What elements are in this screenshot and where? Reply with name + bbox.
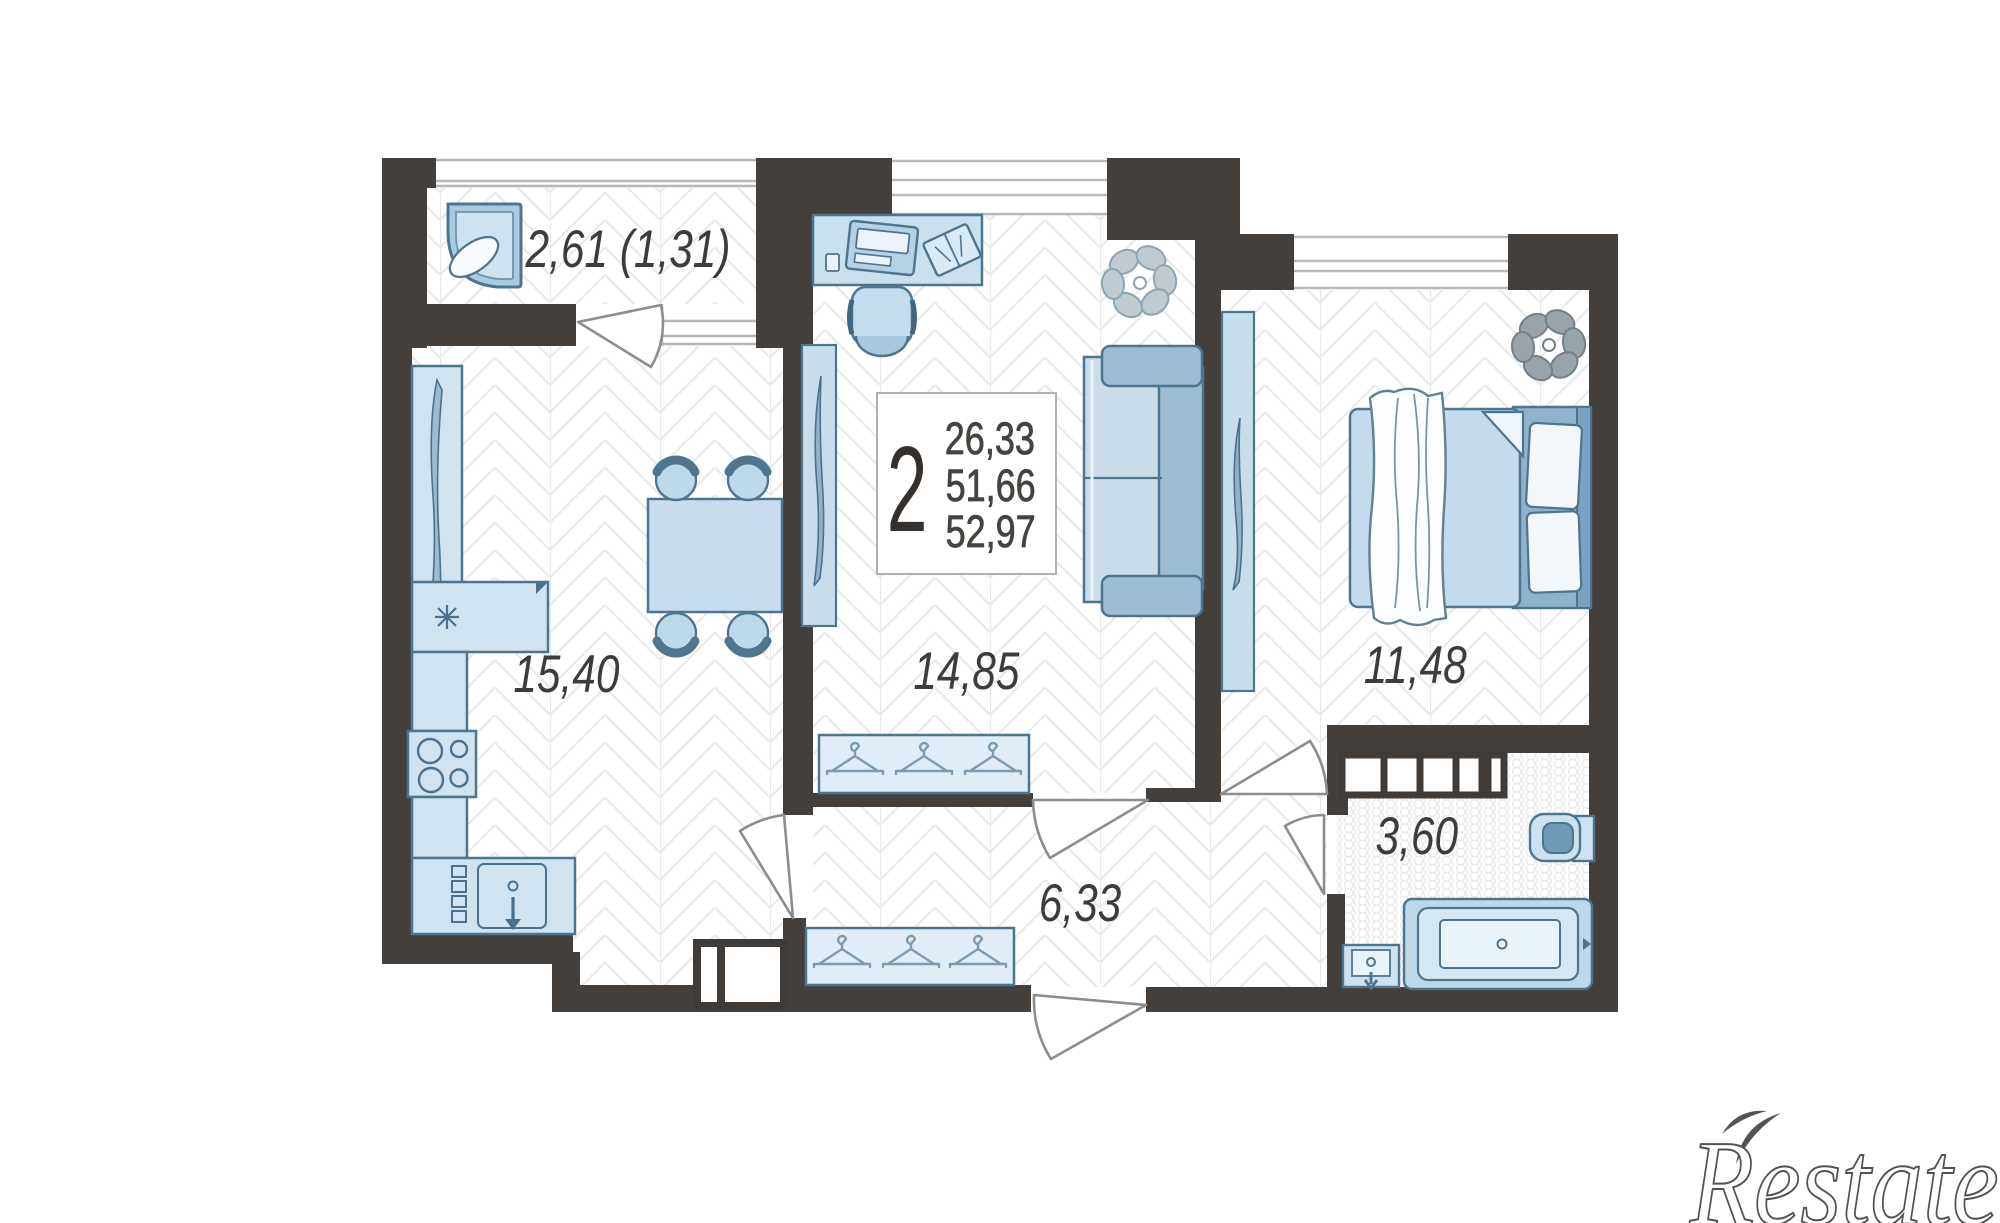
svg-text:51,66: 51,66 (946, 460, 1036, 511)
svg-text:11,48: 11,48 (1364, 637, 1467, 696)
svg-text:2: 2 (887, 422, 928, 558)
svg-text:2,61 (1,31): 2,61 (1,31) (525, 221, 731, 280)
svg-text:3,60: 3,60 (1376, 808, 1459, 867)
svg-text:26,33: 26,33 (945, 413, 1035, 464)
svg-text:15,40: 15,40 (513, 646, 619, 705)
svg-text:Restate: Restate (1689, 1116, 1999, 1223)
svg-text:14,85: 14,85 (913, 643, 1019, 702)
svg-text:6,33: 6,33 (1039, 875, 1122, 934)
svg-text:52,97: 52,97 (946, 506, 1036, 557)
